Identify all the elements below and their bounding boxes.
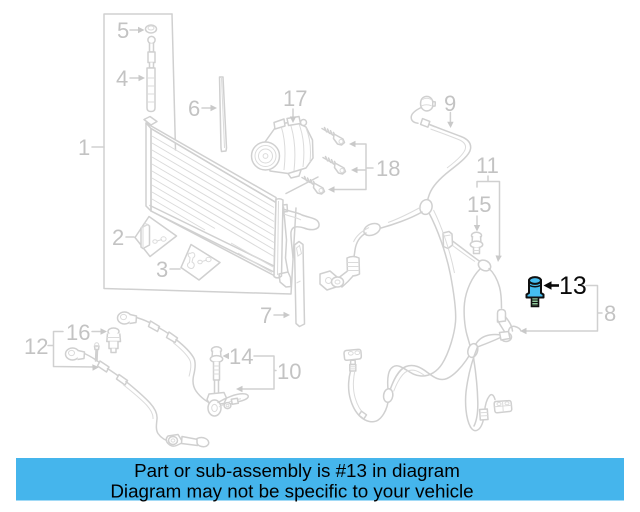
svg-text:13: 13 [559,272,587,300]
svg-text:8: 8 [604,301,616,326]
svg-text:1: 1 [78,135,90,160]
svg-text:Diagram may not be specific to: Diagram may not be specific to your vehi… [110,481,473,502]
svg-text:12: 12 [24,334,48,359]
svg-text:Part or sub-assembly is #13 in: Part or sub-assembly is #13 in diagram [134,460,460,481]
svg-text:14: 14 [229,344,253,369]
svg-text:3: 3 [156,257,168,282]
svg-text:6: 6 [188,96,200,121]
svg-text:2: 2 [112,225,124,250]
svg-text:16: 16 [66,320,90,345]
svg-text:10: 10 [277,359,301,384]
svg-text:4: 4 [116,66,128,91]
svg-text:7: 7 [260,303,272,328]
svg-text:15: 15 [467,192,491,217]
svg-text:5: 5 [117,18,129,43]
svg-text:11: 11 [476,153,499,178]
svg-text:18: 18 [376,156,400,181]
svg-text:17: 17 [283,86,307,111]
